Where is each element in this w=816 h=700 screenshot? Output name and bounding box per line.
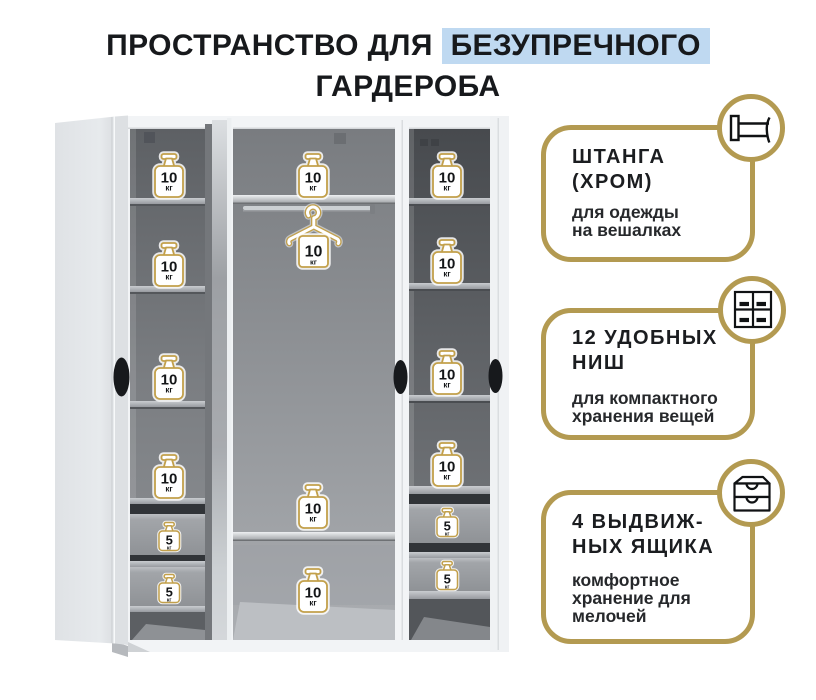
svg-text:кг: кг (310, 258, 317, 267)
